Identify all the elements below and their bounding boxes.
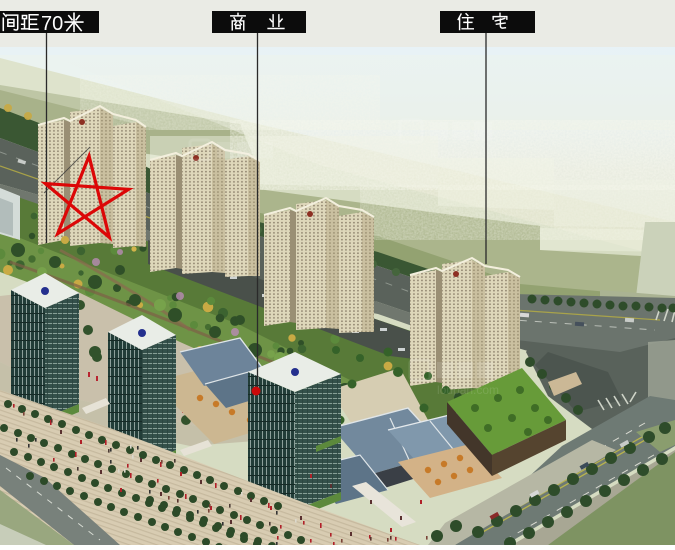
svg-text:loupan.com: loupan.com xyxy=(430,146,497,161)
svg-text:70: 70 xyxy=(41,13,63,35)
svg-text:loupan.com: loupan.com xyxy=(437,383,499,397)
